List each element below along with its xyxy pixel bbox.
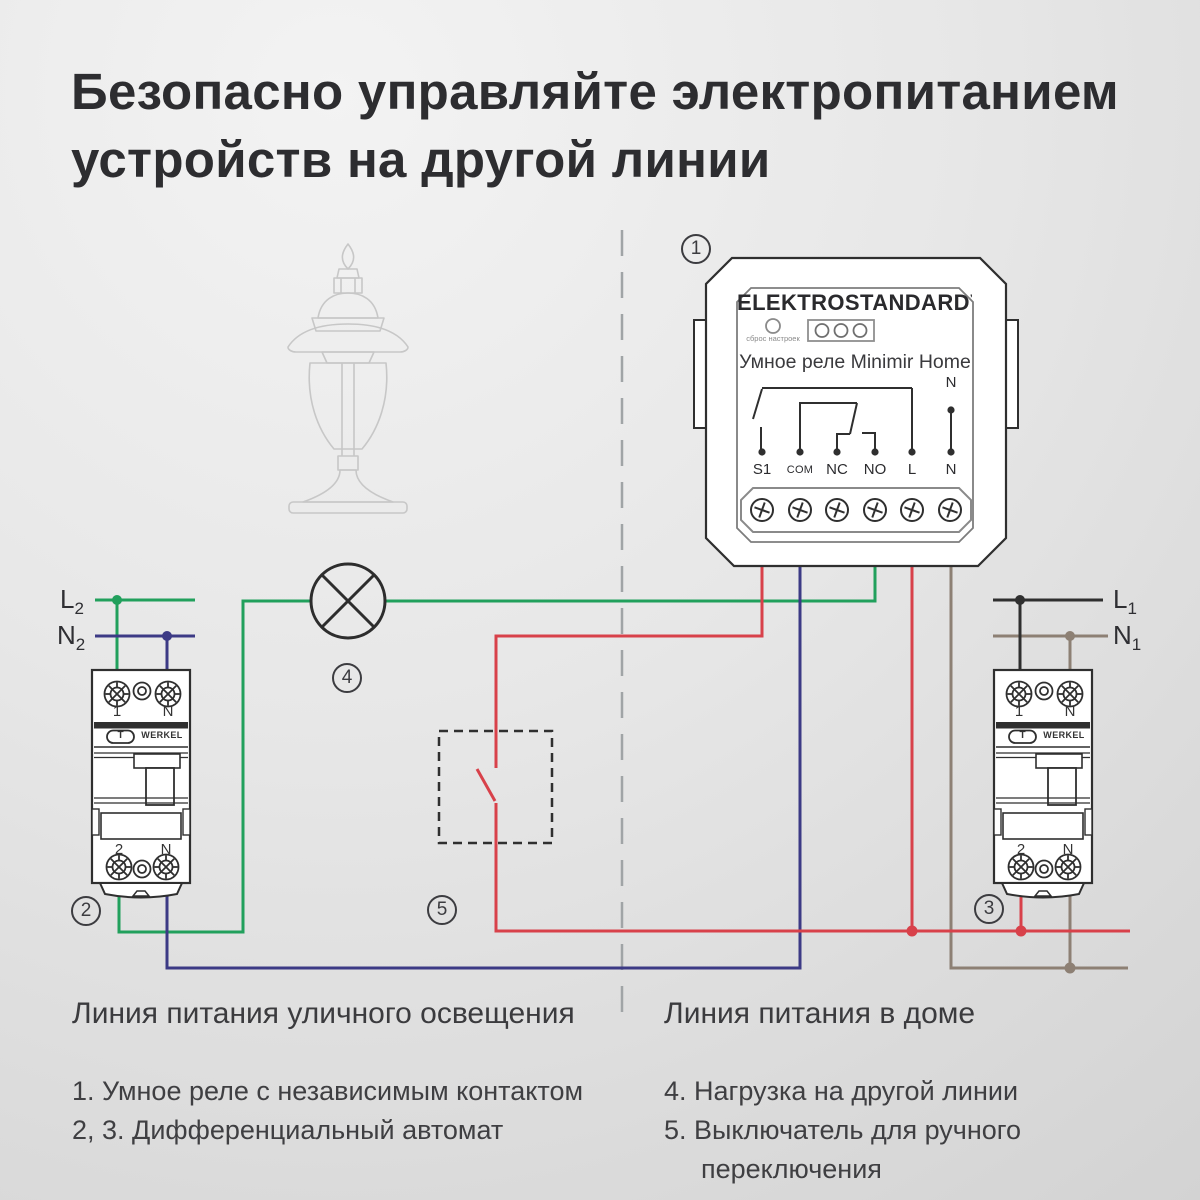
- lamp-symbol: [311, 564, 385, 638]
- breaker-terminal-n-bottom: N: [153, 841, 179, 858]
- callout-5-switch: 5: [427, 895, 457, 925]
- junction-dot-red-right: [1016, 926, 1027, 937]
- breaker-left-labels: 1 N T WERKEL 2 N: [92, 670, 190, 897]
- callout-2-breaker-left: 2: [71, 896, 101, 926]
- reset-button-label: сброс настроек: [740, 334, 806, 343]
- terminal-label-l: L: [898, 461, 926, 478]
- breaker-terminal-n-top: N: [155, 703, 181, 720]
- breaker-terminal-n-top: N: [1057, 703, 1083, 720]
- breaker-terminal-2: 2: [1008, 841, 1034, 858]
- label-n1: N1: [1113, 620, 1141, 655]
- callout-4-load: 4: [332, 663, 362, 693]
- street-lantern-illustration: [288, 244, 408, 513]
- wire-live-street: [95, 560, 875, 932]
- label-n2: N2: [57, 620, 85, 655]
- breaker-right-labels: 1 N T WERKEL 2 N: [994, 670, 1092, 897]
- breaker-terminal-1: 1: [104, 703, 130, 720]
- relay-brand-logo: ELEKTROSTANDARD’: [737, 290, 973, 316]
- legend-item-1: 1. Умное реле с независимым контактом: [72, 1072, 583, 1111]
- legend-right: 4. Нагрузка на другой линии 5. Выключате…: [664, 1072, 1187, 1189]
- legend-item-5: 5. Выключатель для ручного переключения: [664, 1111, 1187, 1189]
- junction-dot-red-left: [907, 926, 918, 937]
- junction-dot-taupe-top: [1065, 631, 1075, 641]
- infographic-canvas: Безопасно управляйте электропитанием уст…: [0, 0, 1200, 1200]
- page-title: Безопасно управляйте электропитанием уст…: [71, 58, 1141, 194]
- caption-house-line: Линия питания в доме: [664, 997, 975, 1031]
- junction-dot-green: [112, 595, 122, 605]
- legend-item-4: 4. Нагрузка на другой линии: [664, 1072, 1187, 1111]
- breaker-terminal-2: 2: [106, 841, 132, 858]
- terminal-label-com: COM: [784, 464, 816, 476]
- test-button-label: T: [107, 730, 134, 741]
- relay-internal-n-label: N: [941, 374, 961, 391]
- legend-left: 1. Умное реле с независимым контактом 2,…: [72, 1072, 583, 1150]
- brand-trademark: ’: [970, 294, 973, 305]
- breaker-terminal-n-bottom: N: [1055, 841, 1081, 858]
- terminal-strip: [741, 488, 971, 532]
- breaker-brand: WERKEL: [136, 730, 188, 740]
- caption-street-line: Линия питания уличного освещения: [72, 997, 575, 1031]
- junction-dot-black: [1015, 595, 1025, 605]
- terminal-label-nc: NC: [823, 461, 851, 478]
- relay-product-name: Умное реле Minimir Home: [737, 351, 973, 374]
- callout-1-relay: 1: [681, 234, 711, 264]
- legend-item-2-3: 2, 3. Дифференциальный автомат: [72, 1111, 583, 1150]
- junction-dot-taupe-bottom: [1065, 963, 1076, 974]
- label-l1: L1: [1113, 584, 1137, 619]
- terminal-label-n: N: [937, 461, 965, 478]
- breaker-brand: WERKEL: [1038, 730, 1090, 740]
- terminal-label-s1: S1: [748, 461, 776, 478]
- test-button-label: T: [1009, 730, 1036, 741]
- label-l2: L2: [60, 584, 84, 619]
- terminal-label-no: NO: [861, 461, 889, 478]
- callout-3-breaker-right: 3: [974, 894, 1004, 924]
- breaker-terminal-1: 1: [1006, 703, 1032, 720]
- junction-dot-navy: [162, 631, 172, 641]
